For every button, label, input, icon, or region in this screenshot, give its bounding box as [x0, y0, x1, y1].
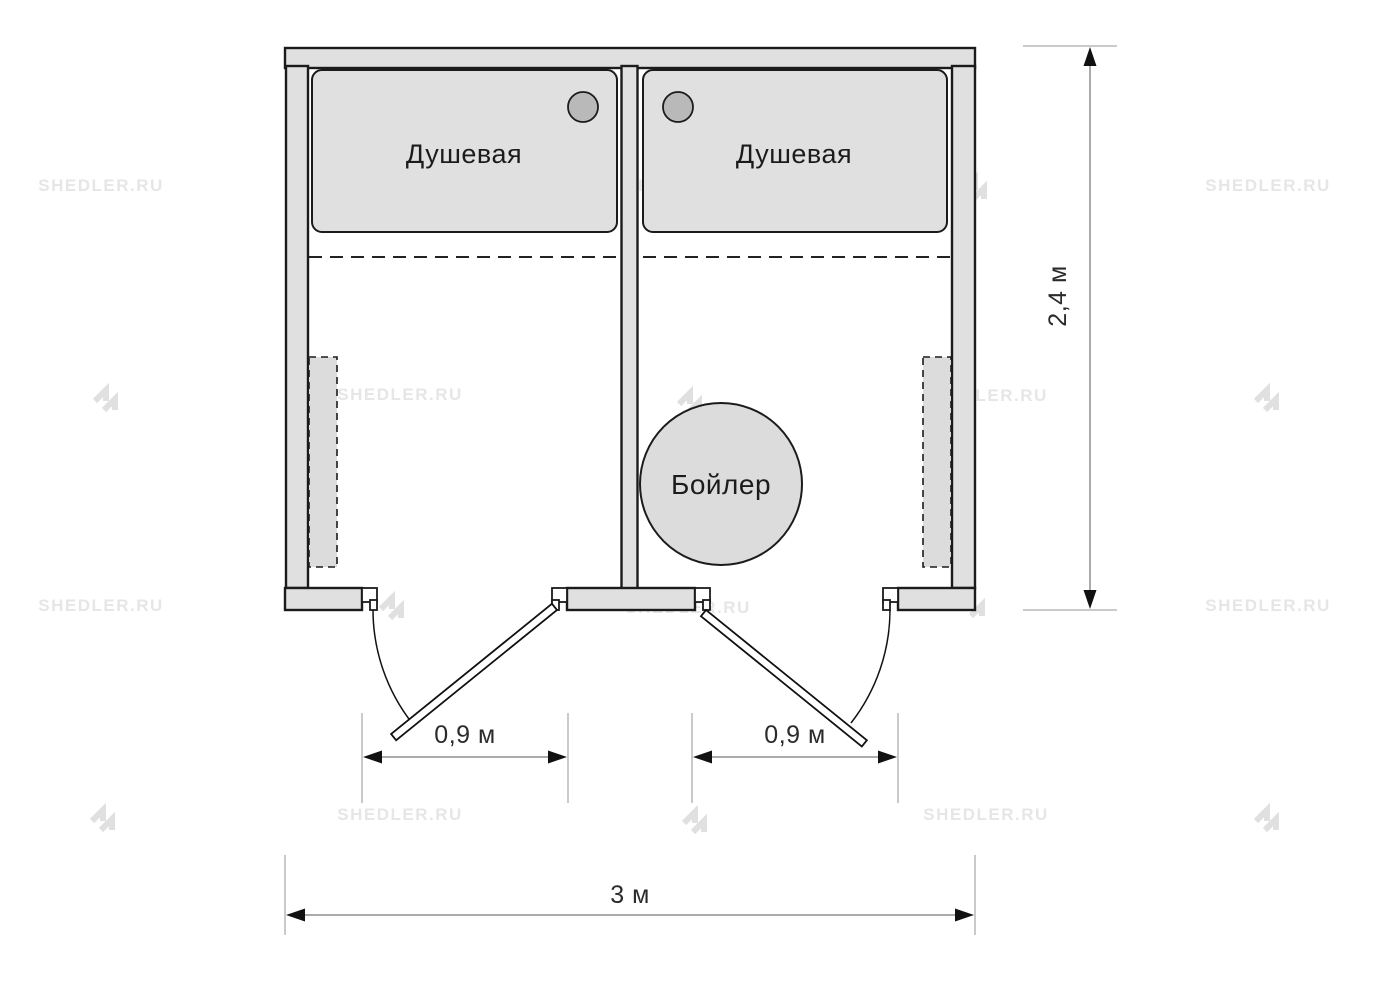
- watermark-text: SHEDLER.RU: [38, 596, 164, 615]
- left-wall: [286, 66, 308, 588]
- arrow-right-icon: [548, 751, 567, 764]
- boiler: Бойлер: [640, 403, 802, 565]
- bottom-wall-right-segment: [898, 588, 975, 610]
- dimension-label-total-width: 3 м: [610, 881, 650, 909]
- dimension-door-left: 0,9 м: [362, 713, 568, 803]
- right-wall: [952, 66, 975, 588]
- bottom-wall-center-segment: [567, 588, 695, 610]
- dimension-total-height: 2,4 м: [1023, 46, 1117, 610]
- door-arc-left: [373, 610, 412, 723]
- watermark-text: SHEDLER.RU: [923, 805, 1049, 824]
- watermark-logo-icon: [381, 598, 401, 618]
- bottom-wall-left-segment: [285, 588, 362, 610]
- arrow-right-icon: [955, 909, 974, 922]
- dimension-label-total-height: 2,4 м: [1044, 265, 1072, 326]
- watermark-logo-icon: [92, 810, 112, 830]
- watermark-text: SHEDLER.RU: [337, 805, 463, 824]
- arrow-right-icon: [878, 751, 897, 764]
- drain-right: [663, 92, 693, 122]
- dimension-door-right: 0,9 м: [692, 713, 898, 803]
- door-leaf-left: [391, 604, 557, 740]
- arrow-down-icon: [1084, 590, 1097, 609]
- wall-fixture-right: [923, 357, 951, 567]
- dimension-label-door-right: 0,9 м: [764, 721, 825, 749]
- watermark-logo-icon: [95, 390, 115, 410]
- door-jamb-left-outer: [362, 588, 377, 610]
- watermark-logo-icon: [1256, 810, 1276, 830]
- dimension-total-width: 3 м: [285, 855, 975, 935]
- arrow-left-icon: [286, 909, 305, 922]
- room-label-right: Душевая: [736, 139, 852, 169]
- floor-plan-svg: SHEDLER.RU SHEDLER.RU SHEDLER.RU SHEDLER…: [0, 0, 1400, 991]
- watermark-text: SHEDLER.RU: [1205, 176, 1331, 195]
- drain-left: [568, 92, 598, 122]
- boiler-label: Бойлер: [671, 469, 771, 500]
- arrow-left-icon: [363, 751, 382, 764]
- door-arc-right: [851, 610, 890, 723]
- door-jamb-right-outer: [883, 588, 898, 610]
- watermark-text: SHEDLER.RU: [38, 176, 164, 195]
- watermark-logo-icon: [1256, 390, 1276, 410]
- room-label-left: Душевая: [406, 139, 522, 169]
- arrow-left-icon: [693, 751, 712, 764]
- floor-plan-canvas: SHEDLER.RU SHEDLER.RU SHEDLER.RU SHEDLER…: [0, 0, 1400, 991]
- wall-fixture-left: [309, 357, 337, 567]
- shower-room-left: Душевая: [309, 70, 617, 567]
- watermark-text: SHEDLER.RU: [1205, 596, 1331, 615]
- arrow-up-icon: [1084, 47, 1097, 66]
- center-partition-wall: [622, 66, 638, 590]
- watermark-text: SHEDLER.RU: [337, 385, 463, 404]
- dimension-label-door-left: 0,9 м: [434, 721, 495, 749]
- watermark-logo-icon: [684, 812, 704, 832]
